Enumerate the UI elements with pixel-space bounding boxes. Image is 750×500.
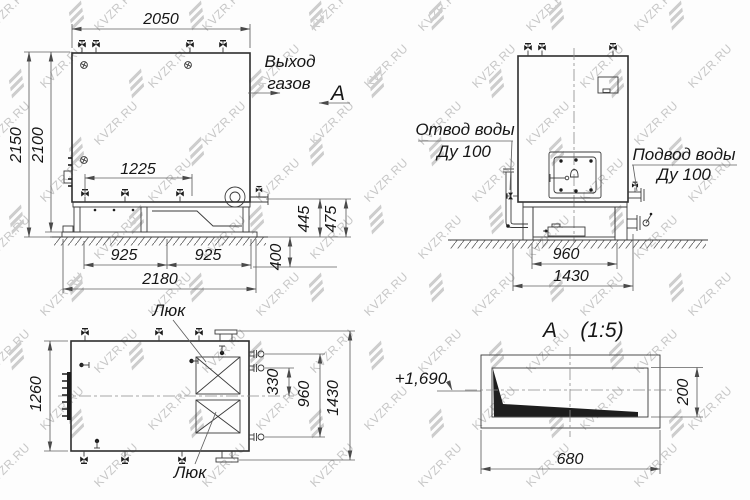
ash-door: [548, 227, 585, 236]
drain-pipe-side: [627, 213, 652, 231]
section-title-scale: (1:5): [580, 319, 623, 342]
hatch-label-top: Люк: [152, 301, 186, 320]
gas-outlet-label: Выход газов: [248, 52, 316, 93]
drawing-sheet: KVZR.RUKVZR.RUKVZR.RUKVZR.RUKVZR.RUKVZR.…: [0, 0, 750, 500]
section-a-view: А (1:5) +1,690 200 680: [395, 319, 703, 474]
dim-base-left: 925: [111, 247, 138, 264]
hatch-label-bottom: Люк: [173, 463, 207, 482]
flange-circle-inner: [230, 192, 240, 202]
dim-plan-overall: 1430: [325, 380, 342, 416]
side-view: 960 1430 Отвод воды Ду 100 Подвод воды Д…: [415, 44, 737, 291]
elevation-value: +1,690: [395, 369, 448, 388]
water-inlet-dn: Ду 100: [655, 165, 711, 184]
dim-base-right: 925: [195, 247, 222, 264]
flange-circle: [225, 187, 245, 207]
fitting-mark: [81, 62, 88, 69]
dim-right-outer: 475: [323, 206, 340, 233]
plan-dimensions: 1260 330 960 1430: [28, 331, 355, 460]
furnace-door: [549, 152, 601, 198]
hatch-bottom-plan: [196, 400, 240, 433]
bottom-flange-plan: [216, 451, 238, 462]
water-outlet-label: Отвод воды Ду 100: [415, 120, 515, 190]
dim-overall-width: 1430: [553, 268, 589, 285]
section-title-letter: А: [541, 319, 557, 342]
section-dimensions: 200 680: [481, 368, 703, 475]
burner-flange-front: [64, 158, 72, 186]
right-pipe-front: [250, 187, 268, 205]
front-view: 2050 2150 2100 1225 445 475: [8, 11, 351, 293]
ground-hatch-front: [54, 238, 266, 246]
boiler-body-side: [518, 56, 628, 202]
bottom-valves-front: [81, 190, 184, 202]
top-valves-side: [524, 44, 617, 56]
water-outlet-text: Отвод воды: [415, 120, 515, 139]
plan-view: Люк Люк 1260 330 960 1430: [28, 301, 355, 482]
water-inlet-text: Подвод воды: [632, 145, 736, 164]
dim-duct-width: 680: [557, 451, 584, 468]
water-inlet-label: Подвод воды Ду 100: [632, 145, 737, 191]
dim-pipe-span: 960: [296, 381, 313, 408]
dim-plan-width: 1260: [28, 376, 45, 412]
boiler-body-front: [72, 53, 250, 202]
section-mark: А: [319, 82, 350, 105]
dim-top-width: 2050: [142, 11, 179, 28]
dim-duct-height: 200: [675, 379, 692, 407]
boiler-drawing: 2050 2150 2100 1225 445 475: [0, 0, 750, 500]
fitting-mark: [185, 62, 192, 69]
dim-height-body: 2100: [30, 127, 47, 164]
dim-base-width: 960: [553, 246, 580, 263]
dim-height-overall: 2150: [8, 127, 25, 164]
gas-outlet-line1: Выход: [264, 52, 315, 71]
hatch-top-plan: [196, 357, 240, 394]
water-outlet-dn: Ду 100: [435, 142, 491, 161]
dim-pipe-offset: 330: [265, 369, 282, 396]
fitting-mark: [81, 157, 88, 164]
dim-foundation: 400: [268, 244, 285, 271]
water-outlet-pipe: [503, 169, 528, 228]
top-valves-front: [78, 41, 227, 53]
dim-nozzle-span: 1225: [120, 161, 156, 178]
baffle-wedge: [493, 369, 638, 417]
base-frame-front: [62, 202, 257, 237]
chimney-plan: [215, 330, 237, 341]
gas-outlet-line2: газов: [267, 74, 310, 93]
section-letter: А: [329, 82, 345, 105]
dim-base-overall: 2180: [141, 271, 178, 288]
dim-right-inner: 445: [296, 206, 313, 233]
elevation-mark: +1,690: [395, 369, 481, 391]
base-frame-side: [523, 202, 627, 240]
inspection-panel: [598, 77, 618, 93]
